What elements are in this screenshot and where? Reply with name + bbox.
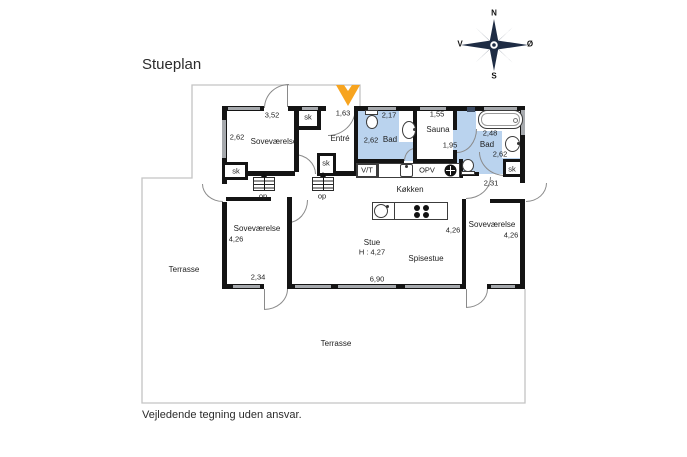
stove-icon: [412, 203, 434, 219]
compass-south-label: S: [491, 72, 496, 81]
room-label-terrace-side: Terrasse: [169, 266, 200, 274]
room-label-bath2: Bad: [480, 141, 494, 149]
room-label-bedroom2: Soveværelse: [234, 225, 281, 233]
entrance-arrow-icon: [336, 85, 360, 106]
closet-label: sk: [304, 113, 312, 121]
closet-label: sk: [232, 167, 240, 175]
door-leaf: [287, 84, 288, 107]
floor-plan-page: Stueplan Vejledende tegning uden ansvar.…: [0, 0, 687, 457]
window-segment: [222, 120, 226, 158]
dim-sauna-width: 1,55: [430, 110, 445, 118]
dim-bedroom1-depth: 2,62: [230, 133, 245, 141]
room-label-sauna: Sauna: [426, 126, 449, 134]
wall-segment: [453, 106, 457, 130]
room-label-bath1: Bad: [383, 136, 397, 144]
wall-segment: [222, 202, 227, 289]
closet-label: sk: [322, 159, 330, 167]
stairs-up-label: op: [318, 192, 326, 200]
sink-tap-icon: [413, 128, 416, 131]
bathtub-drain-icon: [513, 118, 518, 123]
dim-hall-width: 2,31: [484, 179, 499, 187]
dim-bath2-width: 2,48: [483, 129, 498, 137]
cooker-fan-icon: [444, 164, 457, 177]
room-label-entry: Entré: [330, 135, 349, 143]
compass-north-label: N: [491, 9, 497, 18]
closet-label: sk: [508, 165, 516, 173]
wall-segment: [336, 171, 356, 176]
window-segment: [405, 285, 460, 288]
sink-tap-icon: [517, 142, 520, 145]
island-divider: [394, 202, 395, 220]
compass-west-label: V: [457, 40, 462, 49]
dim-bath1-depth: 2,62: [364, 136, 379, 144]
stairs-up-icon: [312, 177, 334, 191]
dim-bath2-depth: 2,62: [493, 150, 508, 158]
dishwasher-label: OPV: [419, 166, 435, 174]
dim-dining-depth: 4,26: [446, 226, 461, 234]
washer-dryer-label: V/T: [361, 166, 373, 174]
window-segment: [302, 107, 318, 110]
dim-bedroom1-width: 3,52: [265, 111, 280, 119]
stairs-up-label: op: [259, 192, 267, 200]
dim-bedroom3-depth: 4,26: [504, 231, 519, 239]
compass-east-label: Ø: [527, 40, 533, 49]
window-segment: [491, 285, 515, 288]
dim-living-ceiling: H : 4,27: [359, 248, 385, 256]
stairs-up-icon: [253, 177, 275, 191]
toilet-tank-icon: [461, 171, 475, 175]
dim-bedroom2-width: 2,34: [251, 273, 266, 281]
window-segment: [295, 285, 331, 288]
room-label-kitchen: Køkken: [396, 186, 423, 194]
island-faucet-icon: [386, 205, 389, 208]
dim-bath1-width: 2,17: [382, 111, 397, 119]
stairs-arrowhead: [320, 172, 326, 177]
wall-segment: [294, 126, 321, 130]
dim-living-width: 6,90: [370, 275, 385, 283]
wall-segment: [520, 202, 525, 289]
wall-segment: [245, 171, 295, 176]
room-label-living: Stue: [364, 239, 380, 247]
room-label-bedroom3: Soveværelse: [469, 221, 516, 229]
dim-entry-width: 1,63: [336, 109, 351, 117]
wall-segment: [462, 199, 466, 289]
stairs-arrowhead: [261, 172, 267, 177]
room-label-bedroom1: Soveværelse: [251, 138, 298, 146]
room-label-dining: Spisestue: [408, 255, 443, 263]
toilet-bowl-icon: [366, 115, 378, 129]
room-label-terrace-main: Terrasse: [321, 340, 352, 348]
door-leaf: [466, 289, 467, 307]
counter-faucet-icon: [405, 165, 408, 168]
wall-segment: [287, 197, 292, 289]
window-segment: [233, 285, 260, 288]
window-segment: [228, 107, 260, 110]
dim-bedroom2-depth: 4,26: [229, 235, 244, 243]
wall-segment: [490, 199, 525, 203]
door-leaf: [264, 289, 265, 309]
vent-icon: [467, 107, 475, 112]
window-segment: [338, 285, 396, 288]
dim-sauna-depth: 1,95: [443, 141, 458, 149]
